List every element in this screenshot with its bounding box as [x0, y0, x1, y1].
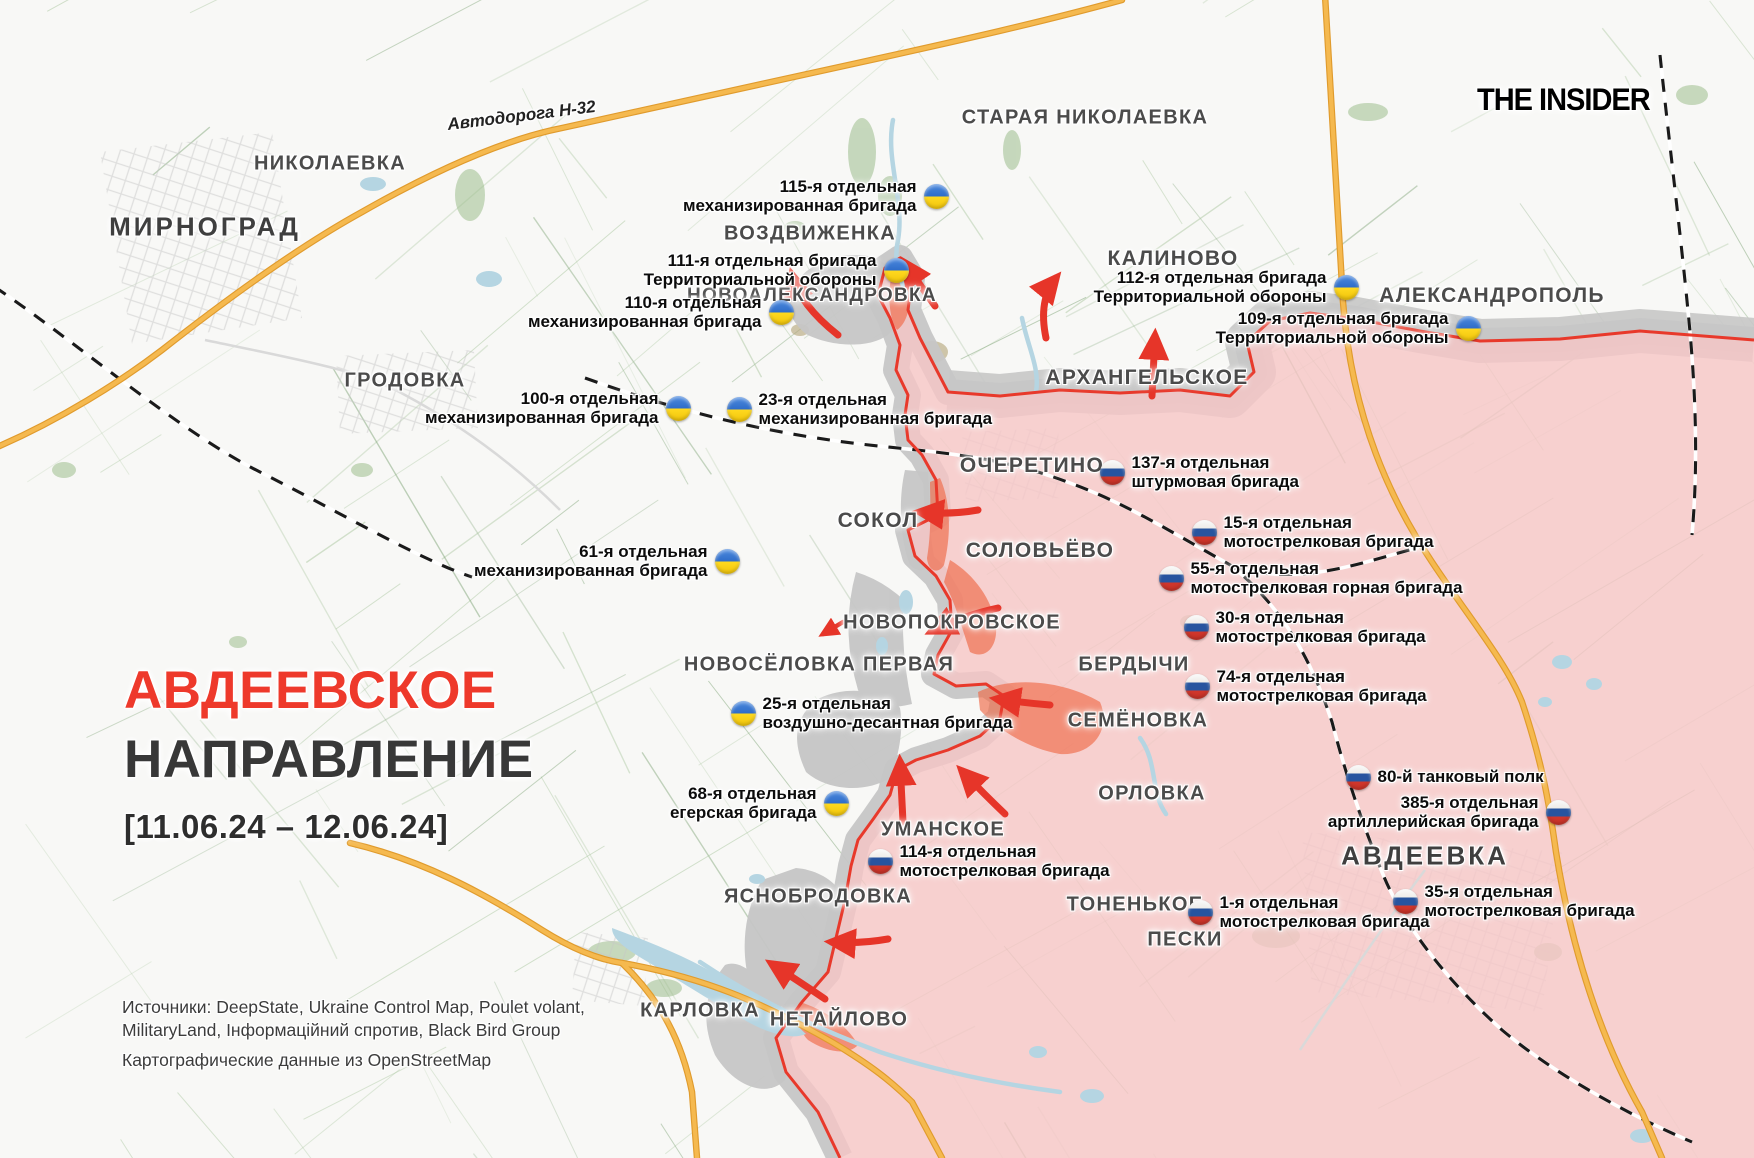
russia-flag-icon [1100, 460, 1125, 485]
unit-label: 100-я отдельнаямеханизированная бригада [425, 389, 659, 427]
unit-label: 30-я отдельнаямотострелковая бригада [1216, 608, 1426, 646]
settlement-label: ТОНЕНЬКОЕ [1067, 894, 1204, 917]
settlement-label: МИРНОГРАД [109, 212, 301, 243]
title-headline-red: АВДЕЕВСКОЕ [124, 664, 534, 717]
unit-marker: 112-я отдельная бригадаТерриториальной о… [1094, 268, 1359, 306]
russia-flag-icon [1546, 800, 1571, 825]
unit-label: 80-й танковый полк [1378, 767, 1544, 786]
unit-label: 61-я отдельнаямеханизированная бригада [474, 542, 708, 580]
settlement-label: БЕРДЫЧИ [1078, 654, 1189, 677]
russia-flag-icon [1159, 566, 1184, 591]
unit-label: 110-я отдельнаямеханизированная бригада [528, 293, 762, 331]
unit-marker: 109-я отдельная бригадаТерриториальной о… [1216, 309, 1481, 347]
sources-block: Источники: DeepState, Ukraine Control Ma… [122, 996, 585, 1071]
unit-marker: 35-я отдельнаямотострелковая бригада [1393, 882, 1635, 920]
unit-label: 385-я отдельнаяартиллерийская бригада [1328, 793, 1539, 831]
unit-marker: 68-я отдельнаяегерская бригада [670, 784, 849, 822]
russia-flag-icon [1393, 889, 1418, 914]
unit-marker: 23-я отдельнаямеханизированная бригада [727, 390, 993, 428]
settlement-label: АРХАНГЕЛЬСКОЕ [1045, 366, 1248, 390]
ukraine-flag-icon [924, 184, 949, 209]
ukraine-flag-icon [1334, 275, 1359, 300]
ukraine-flag-icon [666, 396, 691, 421]
sources-line-1: Источники: DeepState, Ukraine Control Ma… [122, 996, 585, 1019]
settlement-label: СОЛОВЬЁВО [966, 539, 1115, 563]
unit-marker: 110-я отдельнаямеханизированная бригада [528, 293, 794, 331]
title-block: АВДЕЕВСКОЕ НАПРАВЛЕНИЕ [11.06.24 – 12.06… [124, 664, 534, 846]
russia-flag-icon [1184, 615, 1209, 640]
unit-label: 55-я отдельнаямотострелковая горная бриг… [1191, 559, 1463, 597]
settlement-label: ПЕСКИ [1147, 929, 1222, 952]
settlement-label: УМАНСКОЕ [881, 819, 1005, 842]
settlement-label: СЕМЁНОВКА [1068, 710, 1209, 733]
settlement-label: КАРЛОВКА [640, 1000, 760, 1023]
settlement-label: АВДЕЕВКА [1341, 841, 1509, 872]
settlement-label: НОВОСЁЛОВКА ПЕРВАЯ [684, 654, 954, 677]
settlement-label: ОРЛОВКА [1098, 783, 1205, 806]
unit-label: 115-я отдельнаямеханизированная бригада [683, 177, 917, 215]
ukraine-flag-icon [727, 397, 752, 422]
unit-marker: 80-й танковый полк [1346, 765, 1544, 790]
settlement-label: ВОЗДВИЖЕНКА [724, 223, 896, 246]
unit-label: 23-я отдельнаямеханизированная бригада [759, 390, 993, 428]
unit-marker: 100-я отдельнаямеханизированная бригада [425, 389, 691, 427]
ukraine-flag-icon [1456, 316, 1481, 341]
ukraine-flag-icon [731, 701, 756, 726]
russia-flag-icon [1188, 900, 1213, 925]
settlement-label: НИКОЛАЕВКА [254, 153, 406, 176]
russia-flag-icon [868, 849, 893, 874]
unit-label: 112-я отдельная бригадаТерриториальной о… [1094, 268, 1327, 306]
unit-label: 15-я отдельнаямотострелковая бригада [1224, 513, 1434, 551]
unit-marker: 137-я отдельнаяштурмовая бригада [1100, 453, 1300, 491]
settlement-label: НЕТАЙЛОВО [770, 1009, 908, 1032]
unit-marker: 25-я отдельнаявоздушно-десантная бригада [731, 694, 1013, 732]
unit-marker: 55-я отдельнаямотострелковая горная бриг… [1159, 559, 1463, 597]
russia-flag-icon [1192, 520, 1217, 545]
unit-marker: 385-я отдельнаяартиллерийская бригада [1328, 793, 1571, 831]
settlement-label: АЛЕКСАНДРОПОЛЬ [1379, 284, 1605, 308]
sources-line-2: MilitaryLand, Інформаційний спротив, Bla… [122, 1019, 585, 1042]
unit-label: 109-я отдельная бригадаТерриториальной о… [1216, 309, 1449, 347]
unit-label: 35-я отдельнаямотострелковая бригада [1425, 882, 1635, 920]
unit-label: 68-я отдельнаяегерская бригада [670, 784, 817, 822]
settlement-label: НОВОПОКРОВСКОЕ [843, 612, 1061, 635]
settlement-label: СТАРАЯ НИКОЛАЕВКА [962, 107, 1208, 130]
settlement-label: СОКОЛ [838, 509, 919, 533]
unit-marker: 74-я отдельнаямотострелковая бригада [1185, 667, 1427, 705]
the-insider-logo: THE INSIDER [1477, 82, 1650, 118]
unit-marker: 15-я отдельнаямотострелковая бригада [1192, 513, 1434, 551]
ukraine-flag-icon [769, 300, 794, 325]
russia-flag-icon [1185, 674, 1210, 699]
unit-marker: 111-я отдельная бригадаТерриториальной о… [644, 251, 909, 289]
ukraine-flag-icon [715, 549, 740, 574]
sources-line-3: Картографические данные из OpenStreetMap [122, 1049, 585, 1072]
settlement-label: ЯСНОБРОДОВКА [724, 886, 912, 909]
unit-label: 137-я отдельнаяштурмовая бригада [1132, 453, 1300, 491]
unit-label: 114-я отдельнаямотострелковая бригада [900, 842, 1110, 880]
title-date-range: [11.06.24 – 12.06.24] [124, 808, 534, 846]
unit-label: 111-я отдельная бригадаТерриториальной о… [644, 251, 877, 289]
unit-marker: 61-я отдельнаямеханизированная бригада [474, 542, 740, 580]
ukraine-flag-icon [884, 258, 909, 283]
unit-marker: 115-я отдельнаямеханизированная бригада [683, 177, 949, 215]
russia-flag-icon [1346, 765, 1371, 790]
unit-label: 74-я отдельнаямотострелковая бригада [1217, 667, 1427, 705]
ukraine-flag-icon [824, 791, 849, 816]
unit-marker: 114-я отдельнаямотострелковая бригада [868, 842, 1110, 880]
map-infographic: МИРНОГРАДНИКОЛАЕВКАСТАРАЯ НИКОЛАЕВКАВОЗД… [0, 0, 1754, 1158]
unit-marker: 30-я отдельнаямотострелковая бригада [1184, 608, 1426, 646]
title-headline-dark: НАПРАВЛЕНИЕ [124, 733, 534, 786]
settlement-label: ОЧЕРЕТИНО [960, 454, 1104, 478]
unit-label: 25-я отдельнаявоздушно-десантная бригада [763, 694, 1013, 732]
